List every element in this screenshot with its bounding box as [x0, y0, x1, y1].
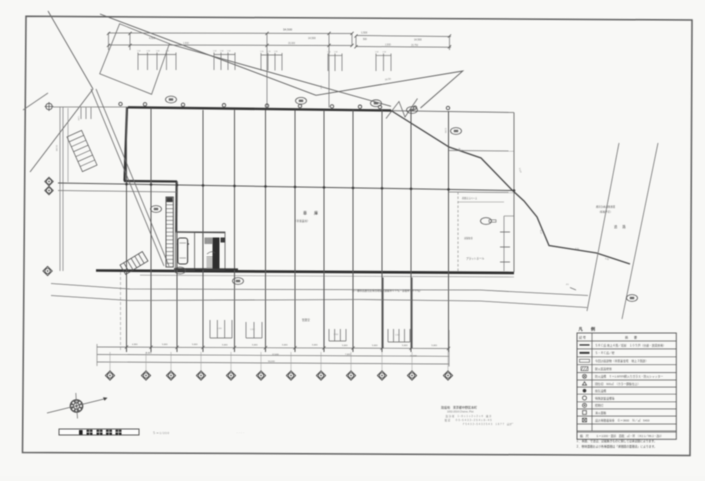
svg-text:1,50: 1,50 — [147, 51, 151, 53]
svg-text:5,000: 5,000 — [252, 344, 258, 346]
svg-text:5,000: 5,000 — [372, 345, 378, 347]
svg-text:5,000: 5,000 — [342, 345, 348, 347]
svg-text:摘 要: 摘 要 — [625, 335, 637, 340]
svg-text:1,500: 1,500 — [334, 334, 339, 336]
svg-text:5,000: 5,000 — [312, 345, 318, 347]
svg-text:２．敷地面積および各種面積は「求積図の面積表」によります。: ２．敷地面積および各種面積は「求積図の面積表」によります。 — [576, 444, 657, 448]
svg-text:17,000: 17,000 — [272, 354, 279, 356]
svg-text:1,50: 1,50 — [260, 51, 264, 53]
svg-text:1,50: 1,50 — [227, 51, 231, 53]
svg-text:ＳＲＣ造 地上４階／塔屋 １０５戸（分譲・賃貸併用）: ＳＲＣ造 地上４階／塔屋 １０５戸（分譲・賃貸併用） — [595, 343, 666, 347]
svg-text:管理室: 管理室 — [302, 318, 310, 322]
svg-text:耐火区画壁体: 耐火区画壁体 — [595, 367, 612, 371]
svg-text:1,50: 1,50 — [334, 52, 338, 54]
svg-text:Ｓ＝1/200・図示 面積：㎡・坪 （Ｒ2.1／R6.2・改: Ｓ＝1/200・図示 面積：㎡・坪 （Ｒ2.1／R6.2・改2） — [596, 434, 663, 438]
svg-text:1,390: 1,390 — [77, 116, 79, 121]
svg-text:56,000: 56,000 — [268, 361, 275, 363]
svg-text:5,000: 5,000 — [432, 345, 438, 347]
svg-text:1,50: 1,50 — [213, 51, 217, 53]
svg-text:5,000: 5,000 — [282, 345, 288, 347]
svg-text:設 計 者 １−８＋１＋２＋２＋４ 東 京: 設 計 者 １−８＋１＋２＋２＋４ 東 京 — [446, 414, 493, 418]
svg-text:8,000: 8,000 — [146, 352, 152, 354]
svg-text:1,500: 1,500 — [395, 335, 400, 337]
svg-text:5,000: 5,000 — [222, 344, 228, 346]
svg-text:（拡幅予定）: （拡幅予定） — [598, 210, 612, 214]
svg-text:1002-2016 Chome, Plot: 1002-2016 Chome, Plot — [447, 411, 474, 414]
svg-text:電 話 ０３−５４３２−２５４＋８−４５: 電 話 ０３−５４３２−２５４＋８−４５ — [445, 418, 493, 422]
svg-text:（車庫兼用）: （車庫兼用） — [294, 219, 310, 223]
svg-text:間仕切 900㎡ （カラー鋼板仕上）: 間仕切 900㎡ （カラー鋼板仕上） — [595, 382, 640, 386]
svg-text:・・・・: ・・・・ — [236, 432, 245, 435]
svg-text:Ｓ・ＲＣ造／壁: Ｓ・ＲＣ造／壁 — [595, 351, 615, 355]
svg-text:1,50: 1,50 — [267, 51, 271, 53]
svg-text:10,000: 10,000 — [410, 356, 417, 358]
svg-text:4,500: 4,500 — [149, 37, 156, 40]
svg-text:消火器箱: 消火器箱 — [595, 411, 606, 415]
svg-text:防火設備 ｔ＝1.6ｍｍ網入りガラス・防火シャッター: 防火設備 ｔ＝1.6ｍｍ網入りガラス・防火シャッター — [595, 375, 663, 379]
svg-text:1,500: 1,500 — [217, 328, 222, 330]
svg-text:5,000: 5,000 — [162, 344, 168, 346]
svg-text:1,50: 1,50 — [327, 52, 331, 54]
svg-text:縮 尺: 縮 尺 — [580, 433, 589, 438]
svg-text:1,500: 1,500 — [250, 329, 255, 331]
svg-text:設計用積載荷重 Ｇ＝3600 Ｎ／㎡ 5400: 設計用積載荷重 Ｇ＝3600 Ｎ／㎡ 5400 — [595, 418, 650, 422]
svg-text:1,50: 1,50 — [274, 51, 278, 53]
svg-text:凡 例: 凡 例 — [578, 326, 598, 333]
svg-text:1,50: 1,50 — [137, 51, 141, 53]
svg-text:都市計画道路事業: 都市計画道路事業 — [596, 205, 616, 209]
svg-text:今回計画建物（車庫兼住宅 地上３階建）: 今回計画建物（車庫兼住宅 地上３階建） — [595, 359, 648, 363]
svg-text:2,150: 2,150 — [444, 128, 446, 134]
svg-text:記 号: 記 号 — [579, 335, 586, 340]
svg-text:15,000: 15,000 — [288, 43, 296, 45]
svg-text:1,50: 1,50 — [375, 52, 379, 54]
svg-text:道 路: 道 路 — [614, 224, 627, 229]
svg-text:照明灯: 照明灯 — [595, 404, 604, 408]
svg-text:15,750: 15,750 — [411, 45, 419, 47]
svg-text:特殊建築設備等: 特殊建築設備等 — [595, 396, 615, 400]
svg-text:1,50: 1,50 — [220, 51, 224, 53]
svg-text:１．本図、寸法は、記載無きものに関しては承認図によります。: １．本図、寸法は、記載無きものに関しては承認図によります。 — [576, 439, 657, 443]
svg-text:プラットホール: プラットホール — [466, 257, 485, 261]
svg-text:34,500: 34,500 — [283, 28, 293, 32]
svg-text:車 庫: 車 庫 — [303, 210, 320, 216]
svg-text:14,500: 14,500 — [414, 39, 422, 42]
svg-text:1,500: 1,500 — [361, 32, 368, 35]
svg-text:Ｓ＝1/200: Ｓ＝1/200 — [153, 431, 170, 435]
svg-text:4,300: 4,300 — [132, 344, 138, 346]
svg-text:22,990: 22,990 — [55, 145, 57, 152]
svg-text:1,50: 1,50 — [166, 51, 170, 53]
svg-text:14,500: 14,500 — [308, 37, 316, 40]
svg-text:5,000: 5,000 — [402, 345, 408, 347]
svg-text:建設地 東京都中野区本町: 建設地 東京都中野区本町 — [441, 404, 477, 409]
svg-text:換気設備: 換気設備 — [595, 389, 606, 393]
svg-text:1,50: 1,50 — [383, 52, 387, 54]
svg-text:1,500: 1,500 — [385, 45, 391, 47]
svg-text:1,50: 1,50 — [156, 51, 160, 53]
svg-text:5,000: 5,000 — [192, 344, 198, 346]
svg-text:Ｆ５４３２−５４３２５４３ １８７７ ほか: Ｆ５４３２−５４３２５４３ １８７７ ほか — [463, 422, 513, 426]
svg-text:1,500: 1,500 — [183, 43, 189, 45]
